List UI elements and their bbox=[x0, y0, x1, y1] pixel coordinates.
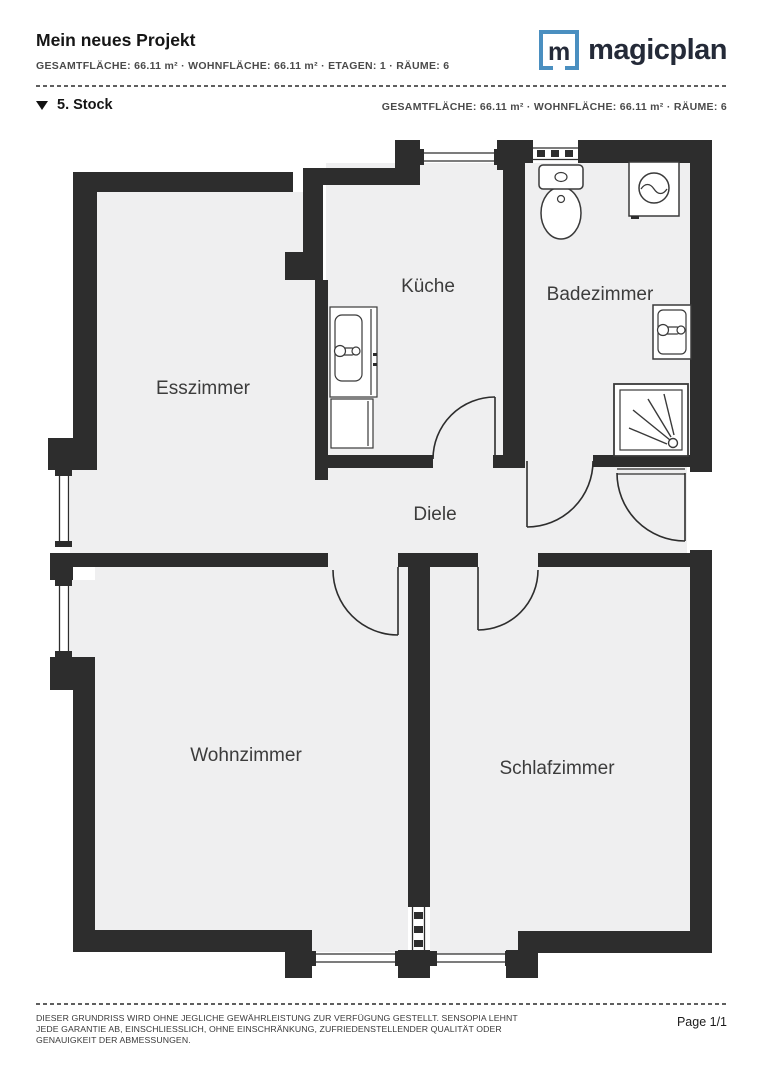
room-label-wohnzimmer: Wohnzimmer bbox=[190, 745, 302, 766]
footer-divider bbox=[36, 1003, 727, 1005]
disclaimer-text: DIESER GRUNDRISS WIRD OHNE JEGLICHE GEWÄ… bbox=[36, 1013, 541, 1046]
header-divider bbox=[36, 85, 727, 87]
shower-icon bbox=[614, 384, 688, 456]
magicplan-logo-wordmark: magicplan bbox=[588, 34, 727, 67]
project-title: Mein neues Projekt bbox=[36, 30, 196, 51]
toilet-icon bbox=[539, 165, 583, 239]
room-label-badezimmer: Badezimmer bbox=[547, 284, 654, 305]
magicplan-logo-letter: m bbox=[548, 40, 570, 65]
project-stats: GESAMTFLÄCHE: 66.11 m² · WOHNFLÄCHE: 66.… bbox=[36, 60, 449, 72]
floorplan-drawing: Esszimmer Küche Badezimmer Diele Wohnzim… bbox=[0, 0, 763, 1080]
floor-stats: GESAMTFLÄCHE: 66.11 m² · WOHNFLÄCHE: 66.… bbox=[382, 101, 727, 113]
floorplan-page: Esszimmer Küche Badezimmer Diele Wohnzim… bbox=[0, 0, 763, 1080]
magicplan-logo: m magicplan bbox=[539, 30, 727, 70]
room-label-diele: Diele bbox=[413, 504, 456, 525]
kitchen-sink-icon bbox=[330, 307, 377, 448]
room-label-schlafzimmer: Schlafzimmer bbox=[499, 758, 615, 779]
collapse-triangle-icon bbox=[36, 101, 48, 110]
washing-machine-icon bbox=[629, 162, 679, 219]
page-number: Page 1/1 bbox=[677, 1015, 727, 1029]
magicplan-logo-icon: m bbox=[539, 30, 579, 70]
room-label-esszimmer: Esszimmer bbox=[156, 378, 251, 399]
room-label-kueche: Küche bbox=[401, 276, 455, 297]
bathroom-sink-icon bbox=[653, 305, 691, 359]
floor-section-header: 5. Stock bbox=[36, 97, 113, 113]
floor-name: 5. Stock bbox=[57, 97, 113, 113]
